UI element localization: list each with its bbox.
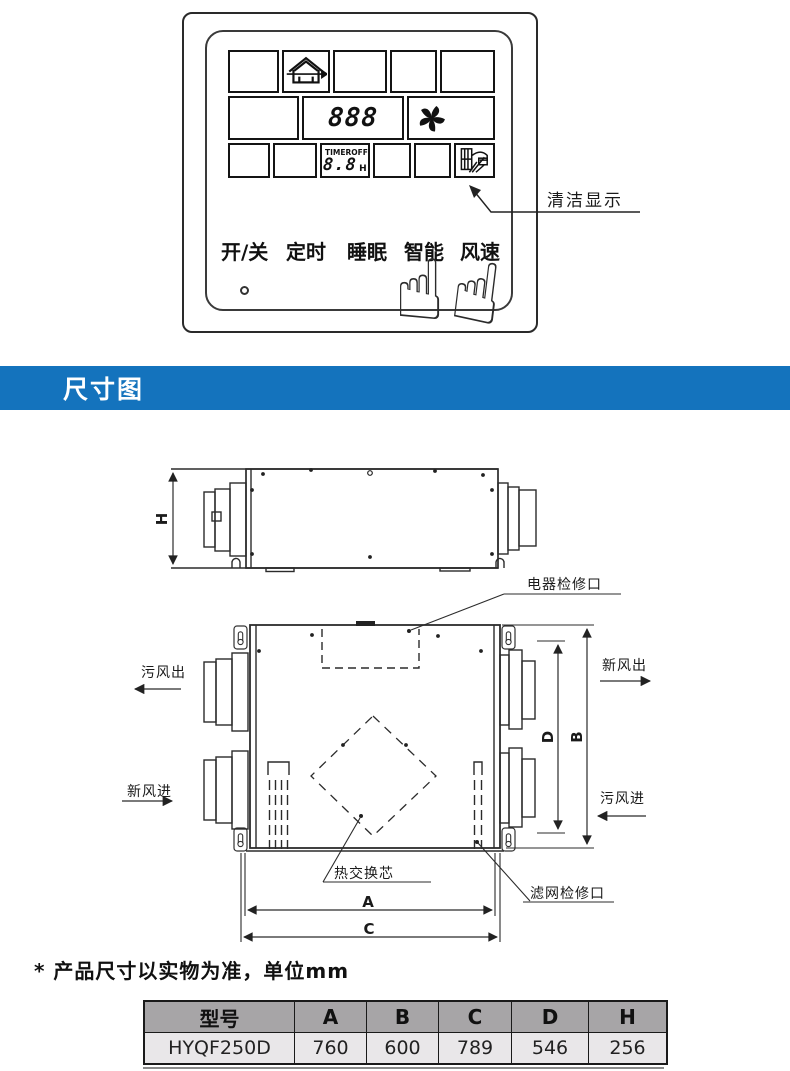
lcd-cell-mode-digits: 888	[302, 96, 404, 140]
timer-button[interactable]: 定时	[286, 236, 326, 265]
dim-h-value: 256	[589, 1033, 667, 1064]
dim-c-label: C	[363, 920, 374, 938]
timer-digits: 8.8	[323, 157, 358, 174]
power-indicator-dot	[240, 286, 249, 295]
lcd-row-2: 888	[228, 96, 495, 140]
timer-unit: H	[359, 165, 367, 174]
clean-display-annotation: 清洁显示	[547, 186, 623, 211]
lcd-cell	[228, 143, 270, 178]
col-header-d: D	[512, 1002, 589, 1033]
dim-h-label: H	[153, 513, 171, 526]
house-ventilation-icon	[285, 54, 327, 90]
lcd-display: 888 TIMER OFF 8.8	[228, 50, 495, 181]
fan-icon	[418, 105, 445, 132]
col-header-model: 型号	[145, 1002, 295, 1033]
side-view	[171, 468, 536, 571]
dimension-drawing: H	[0, 430, 790, 960]
heat-exchange-core-label: 热交换芯	[334, 865, 394, 882]
lcd-cell	[228, 96, 299, 140]
lcd-cell-clean	[454, 143, 495, 178]
spec-table-header-row: 型号 A B C D H	[145, 1002, 667, 1033]
dim-a-value: 760	[295, 1033, 367, 1064]
dim-a-label: A	[362, 893, 374, 911]
lcd-row-1	[228, 50, 495, 93]
model-value: HYQF250D	[145, 1033, 295, 1064]
lcd-cell	[440, 50, 495, 93]
fresh-air-in-label: 新风进	[127, 784, 172, 800]
fanspeed-button[interactable]: 风速	[460, 236, 500, 265]
clean-filter-icon	[460, 146, 490, 176]
section-title: 尺寸图	[63, 370, 144, 406]
smart-button[interactable]: 智能	[404, 236, 444, 265]
exhaust-air-in-label: 污风进	[600, 791, 645, 807]
exhaust-air-out-label: 污风出	[141, 665, 186, 681]
lcd-cell-fan	[407, 96, 495, 140]
dimension-note: * 产品尺寸以实物为准，单位mm	[34, 955, 349, 984]
col-header-b: B	[367, 1002, 439, 1033]
lcd-cell	[333, 50, 387, 93]
lcd-cell	[414, 143, 451, 178]
mode-digits: 888	[327, 103, 379, 133]
lcd-cell-ventilation	[282, 50, 330, 93]
dim-b-label: B	[568, 731, 586, 742]
section-banner: 尺寸图	[0, 366, 790, 410]
power-button[interactable]: 开/关	[221, 236, 268, 265]
electrical-access-label: 电器检修口	[527, 577, 602, 593]
lcd-cell	[228, 50, 279, 93]
col-header-c: C	[439, 1002, 512, 1033]
sleep-button[interactable]: 睡眠	[347, 236, 387, 265]
filter-access-label: 滤网检修口	[530, 886, 605, 902]
lcd-cell-timer: TIMER OFF 8.8 H	[320, 143, 370, 178]
lcd-row-3: TIMER OFF 8.8 H	[228, 143, 495, 178]
fresh-air-out-label: 新风出	[602, 658, 647, 674]
dim-d-value: 546	[512, 1033, 589, 1064]
lcd-cell	[273, 143, 317, 178]
lcd-cell	[373, 143, 411, 178]
col-header-h: H	[589, 1002, 667, 1033]
dim-d-label: D	[539, 731, 557, 743]
dim-c-value: 789	[439, 1033, 512, 1064]
col-header-a: A	[295, 1002, 367, 1033]
dim-b-value: 600	[367, 1033, 439, 1064]
lcd-cell	[390, 50, 437, 93]
spec-table-data-row: HYQF250D 760 600 789 546 256	[145, 1033, 667, 1064]
spec-table: 型号 A B C D H HYQF250D 760 600 789 546 25…	[143, 1000, 668, 1065]
table-bottom-rule	[143, 1067, 664, 1069]
